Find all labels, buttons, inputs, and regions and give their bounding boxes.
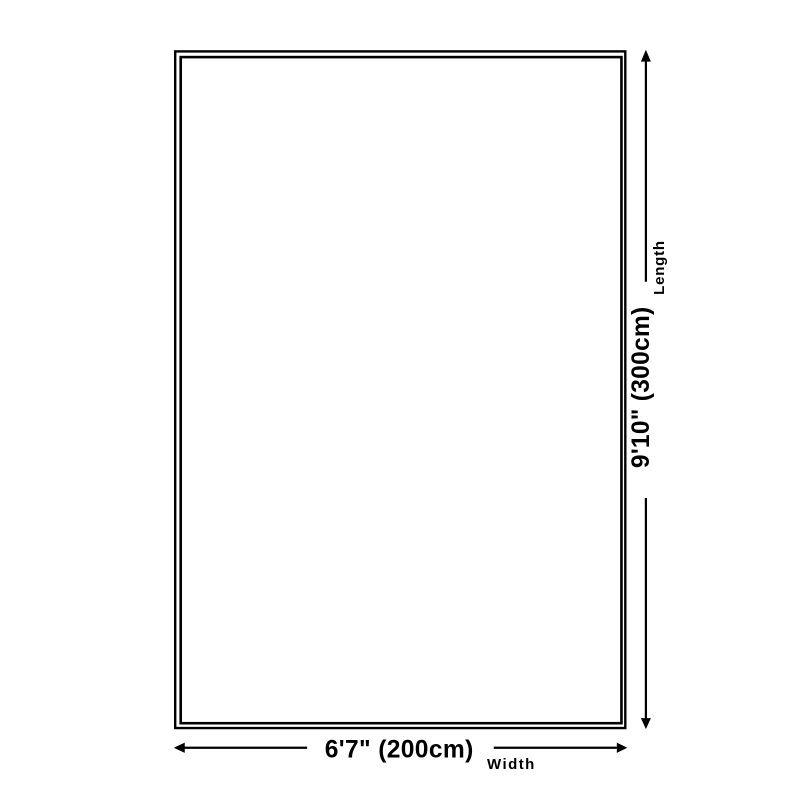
svg-text:Width: Width xyxy=(487,756,536,773)
svg-text:Length: Length xyxy=(651,240,668,295)
svg-text:9'10" (300cm): 9'10" (300cm) xyxy=(628,307,655,469)
svg-text:6'7" (200cm): 6'7" (200cm) xyxy=(325,737,474,764)
